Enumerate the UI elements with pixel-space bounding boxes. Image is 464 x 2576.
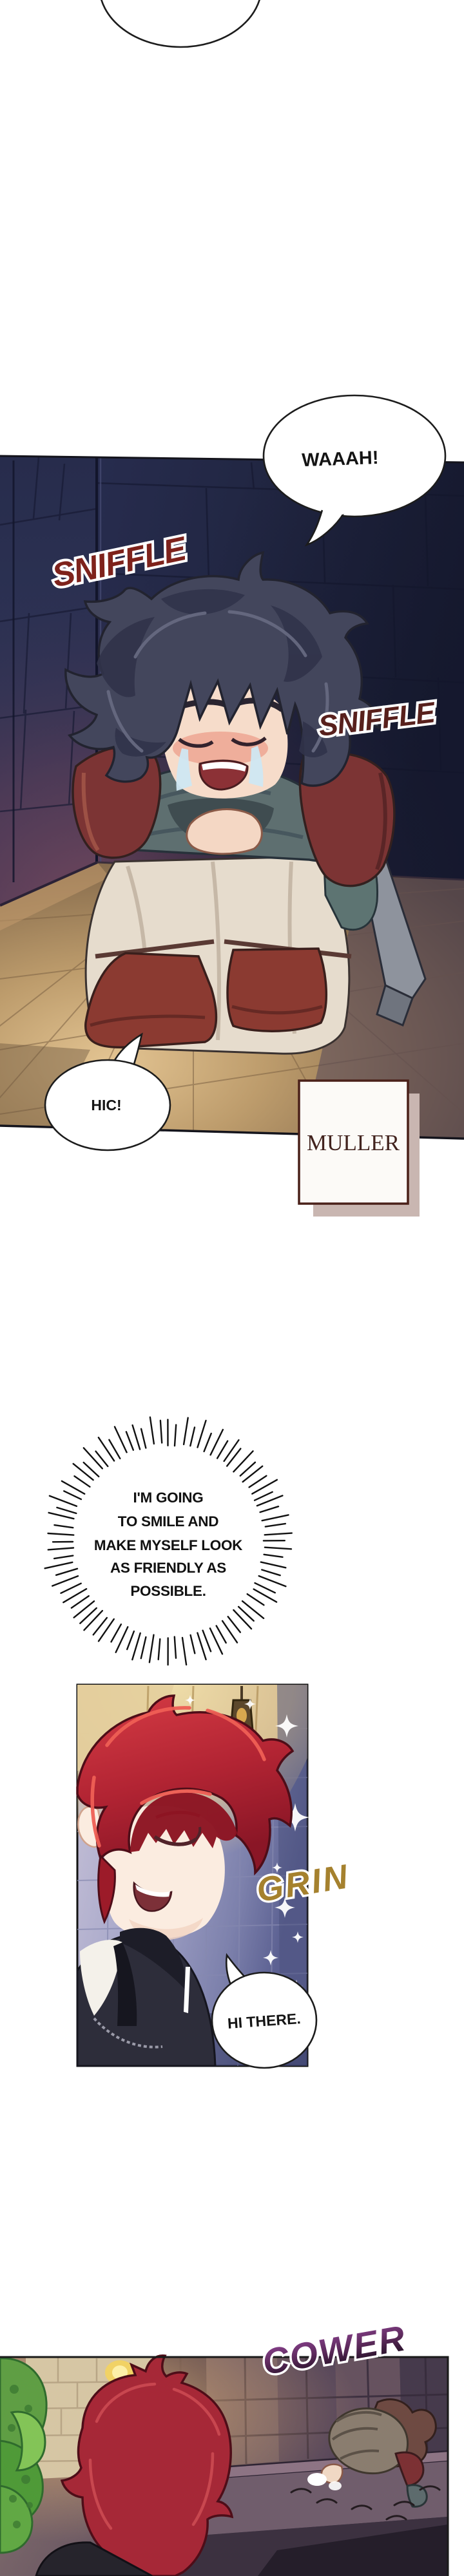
svg-text:HIC!: HIC! <box>91 1097 121 1113</box>
svg-text:I'M GOING: I'M GOING <box>133 1490 204 1506</box>
svg-text:POSSIBLE.: POSSIBLE. <box>130 1583 206 1599</box>
svg-text:WAAAH!: WAAAH! <box>302 448 379 471</box>
svg-text:AS FRIENDLY AS: AS FRIENDLY AS <box>110 1560 226 1576</box>
svg-text:MAKE MYSELF LOOK: MAKE MYSELF LOOK <box>94 1537 243 1553</box>
svg-text:MULLER: MULLER <box>307 1130 400 1155</box>
svg-text:TO SMILE AND: TO SMILE AND <box>118 1513 218 1529</box>
